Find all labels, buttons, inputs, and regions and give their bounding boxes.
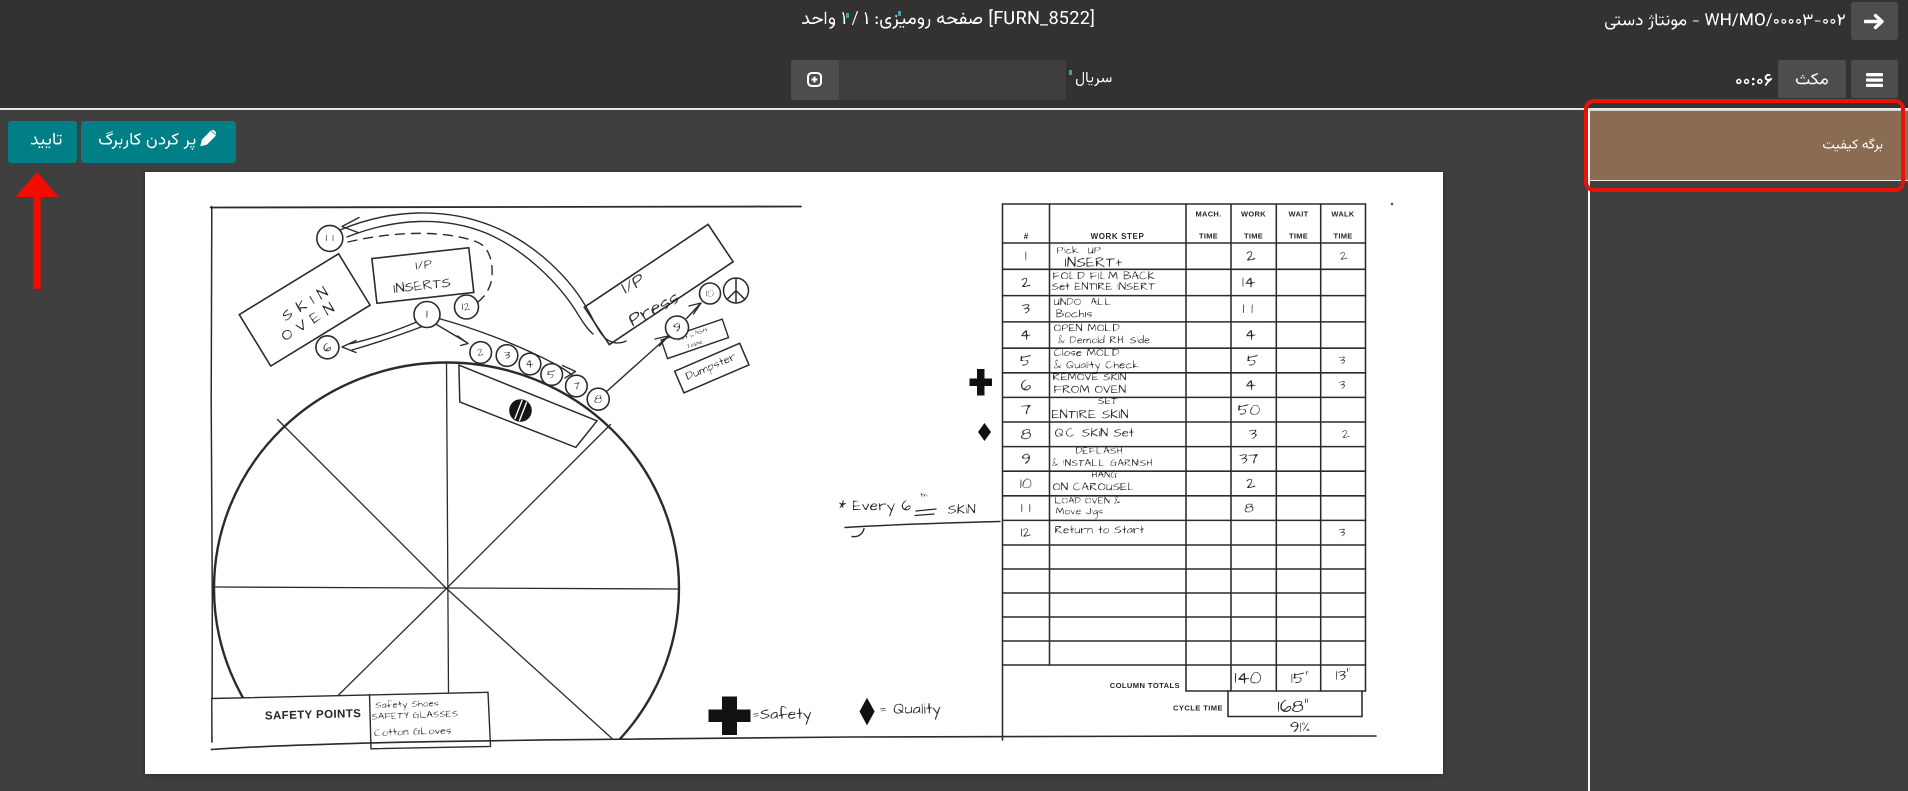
svg-text:CYCLE TIME: CYCLE TIME (1173, 704, 1223, 713)
svg-text:TIME: TIME (1244, 232, 1263, 241)
svg-text:WALK: WALK (1331, 210, 1355, 219)
svg-text:MACH.: MACH. (1195, 210, 1221, 219)
svg-text:WORK: WORK (1241, 210, 1266, 219)
svg-text:COLUMN TOTALS: COLUMN TOTALS (1110, 681, 1180, 690)
svg-text:#: # (1024, 232, 1029, 241)
svg-text:TIME: TIME (1289, 232, 1308, 241)
svg-text:WORK STEP: WORK STEP (1091, 232, 1145, 241)
svg-text:WAIT: WAIT (1289, 210, 1309, 219)
svg-text:TIME: TIME (1199, 232, 1218, 241)
svg-text:SAFETY POINTS: SAFETY POINTS (265, 708, 362, 723)
svg-text:TIME: TIME (1333, 232, 1352, 241)
